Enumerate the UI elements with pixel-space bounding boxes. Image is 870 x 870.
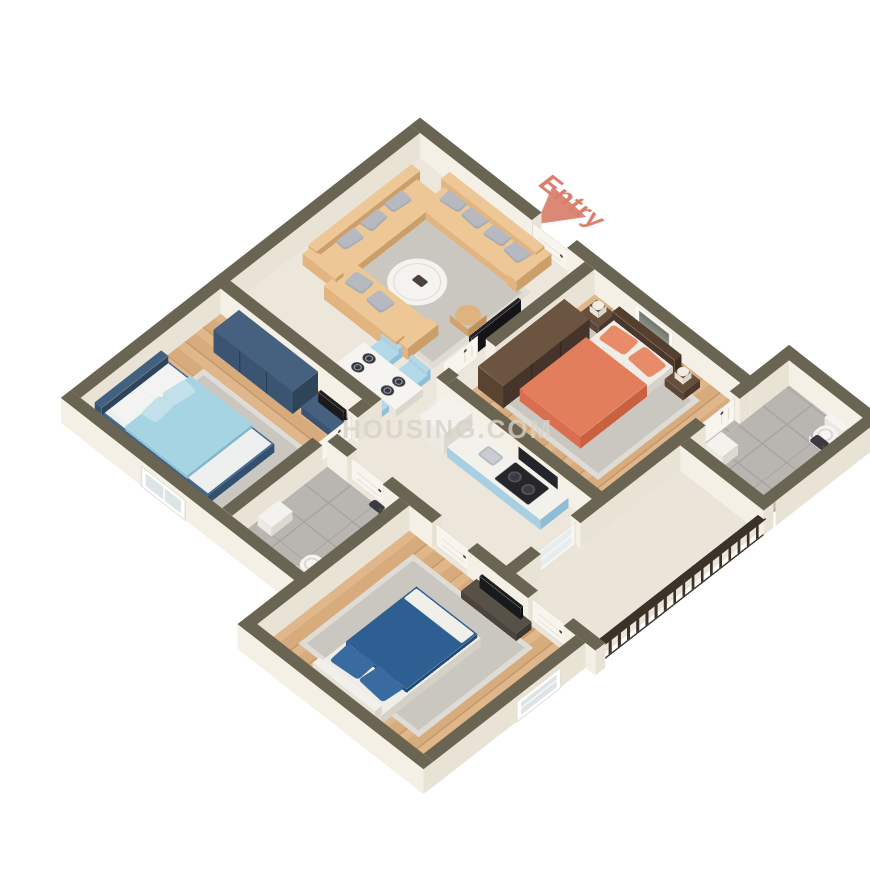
place-setting: [390, 374, 408, 388]
plate-inner: [393, 377, 404, 386]
watermark: HOUSING.COM: [342, 414, 532, 445]
bathroom-2-door-doorknob: [378, 488, 381, 493]
bedroom-2-window-mullion: [163, 486, 164, 501]
wall-bedroom3-south-face-east: [424, 762, 434, 795]
bedroom3-balcony-door-doorknob: [559, 629, 562, 634]
stove-burner: [518, 482, 538, 497]
master-bathroom-door-panel-line: [721, 413, 722, 425]
plate-inner: [363, 354, 374, 363]
stove-burner: [505, 469, 525, 484]
wall-balcony-south-b-face-east: [595, 643, 605, 676]
kitchen-sink: [477, 445, 504, 466]
master-bedroom-door-panel-line: [472, 345, 473, 357]
entry-door-doorknob: [560, 254, 563, 259]
master-bedroom-door-panel-line: [465, 351, 466, 363]
master-bathroom-door-panel-line: [728, 408, 729, 420]
plate-inner: [382, 386, 393, 395]
plate-inner: [352, 363, 363, 372]
place-setting: [378, 383, 396, 397]
bedroom-3-door-doorknob: [463, 554, 466, 559]
floorplan-3d-scene: Entry HOUSING.COM: [0, 0, 870, 870]
place-setting: [349, 360, 367, 374]
